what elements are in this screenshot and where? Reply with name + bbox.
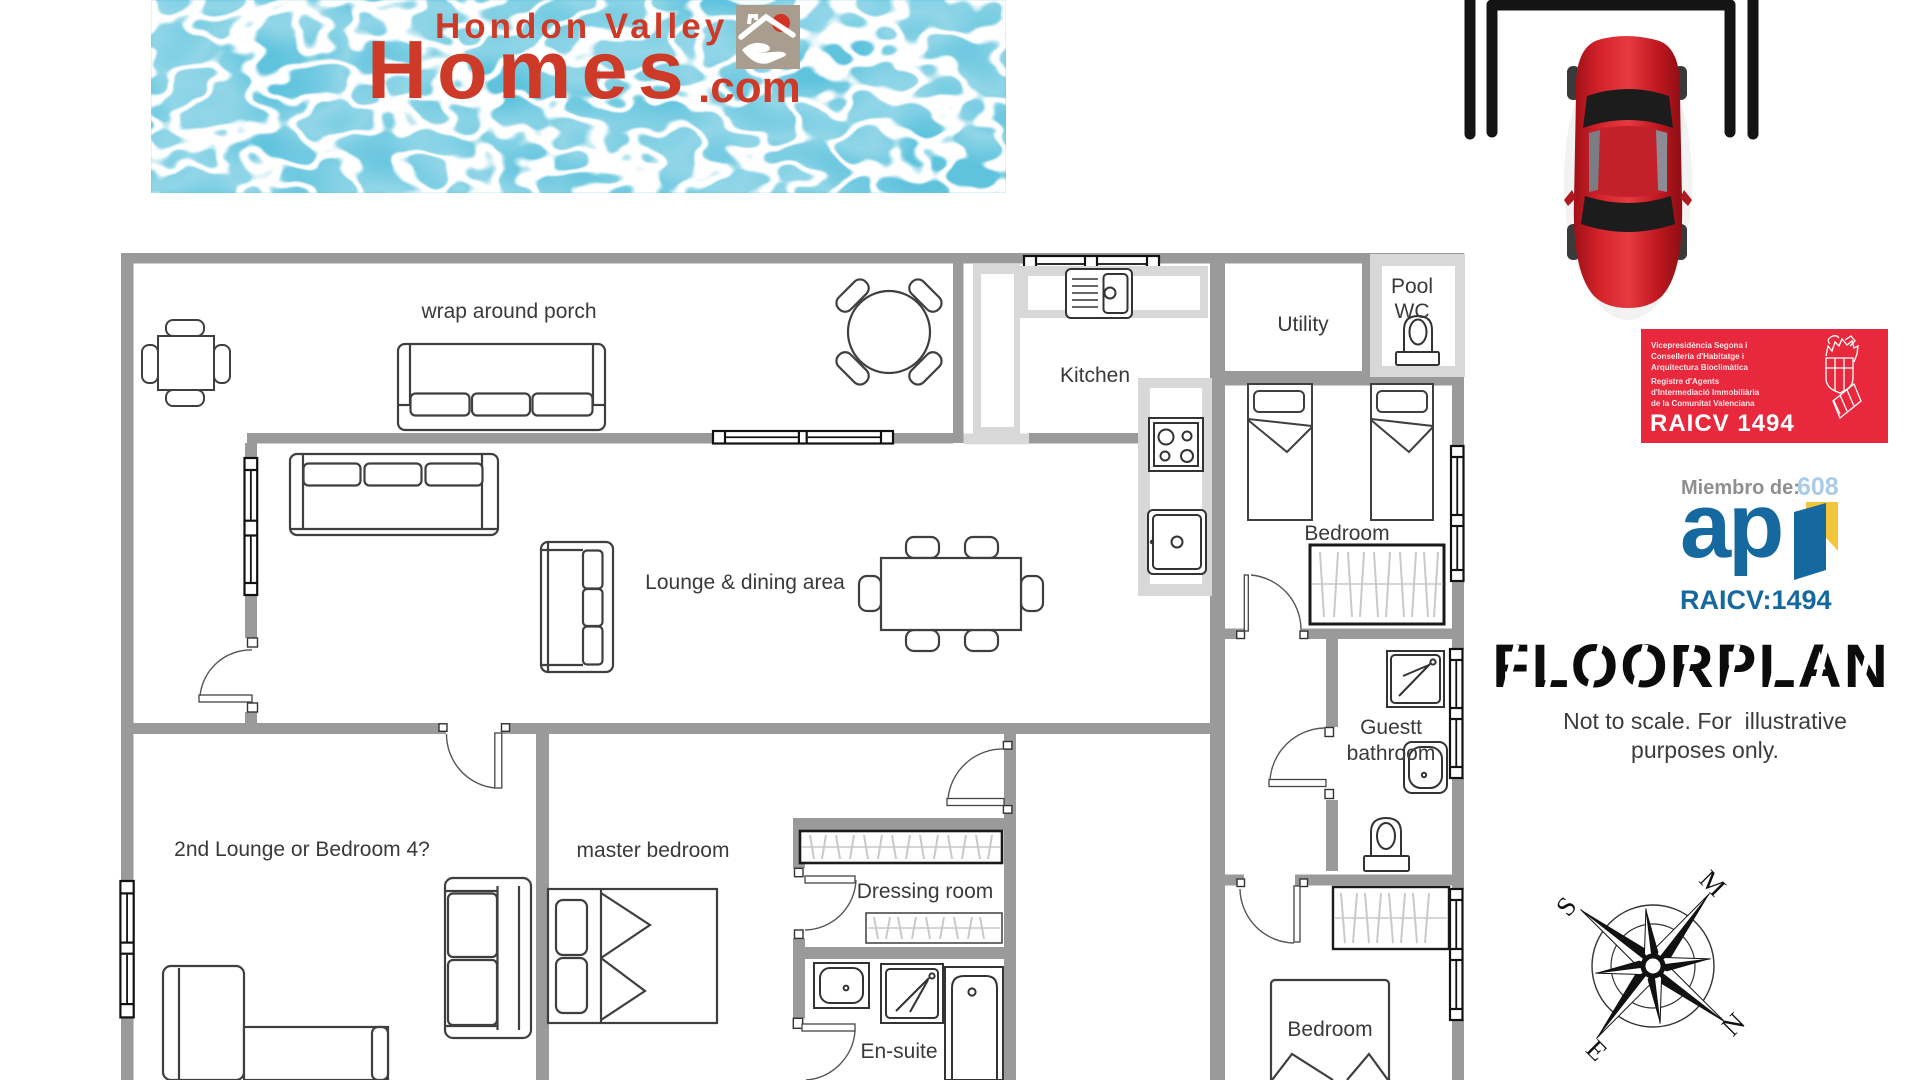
svg-text:wrap around porch: wrap around porch — [420, 300, 596, 323]
svg-text:Pool: Pool — [1391, 275, 1433, 298]
svg-text:Vicepresidència Segona i: Vicepresidència Segona i — [1651, 341, 1747, 350]
svg-text:Guestt: Guestt — [1360, 716, 1422, 739]
svg-text:E: E — [1580, 1034, 1613, 1067]
svg-text:Registre d'Agents: Registre d'Agents — [1651, 377, 1720, 386]
svg-text:Homes: Homes — [367, 23, 694, 116]
svg-text:Bedroom: Bedroom — [1287, 1018, 1372, 1041]
svg-text:master bedroom: master bedroom — [577, 839, 730, 862]
svg-text:Lounge & dining area: Lounge & dining area — [645, 571, 845, 594]
svg-text:.com: .com — [698, 63, 801, 112]
svg-text:Kitchen: Kitchen — [1060, 364, 1130, 387]
svg-text:de la Comunitat Valenciana: de la Comunitat Valenciana — [1651, 399, 1755, 408]
svg-text:2nd Lounge or Bedroom 4?: 2nd Lounge or Bedroom 4? — [174, 838, 430, 861]
svg-text:ap: ap — [1680, 475, 1781, 577]
svg-text:bathroom: bathroom — [1347, 742, 1436, 765]
svg-text:purposes only.: purposes only. — [1631, 737, 1779, 763]
svg-text:RAICV 1494: RAICV 1494 — [1650, 410, 1795, 437]
svg-text:N: N — [1716, 1007, 1751, 1042]
svg-text:En-suite: En-suite — [860, 1040, 937, 1063]
svg-text:Dressing room: Dressing room — [857, 880, 994, 903]
svg-text:RAICV:1494: RAICV:1494 — [1680, 585, 1832, 615]
svg-text:Bedroom: Bedroom — [1304, 522, 1389, 545]
svg-text:WC: WC — [1395, 300, 1430, 323]
svg-text:M: M — [1694, 864, 1732, 902]
svg-text:Not to scale. For illustrativ: Not to scale. For illustrative — [1563, 708, 1847, 734]
svg-text:Arquitectura Bioclimàtica: Arquitectura Bioclimàtica — [1651, 363, 1748, 372]
svg-text:d'Intermediació Immobiliària: d'Intermediació Immobiliària — [1651, 388, 1760, 397]
svg-text:Conselleria d'Habitatge i: Conselleria d'Habitatge i — [1651, 352, 1744, 361]
svg-text:Utility: Utility — [1277, 313, 1329, 336]
svg-text:S: S — [1550, 891, 1583, 922]
svg-text:608: 608 — [1797, 473, 1839, 501]
